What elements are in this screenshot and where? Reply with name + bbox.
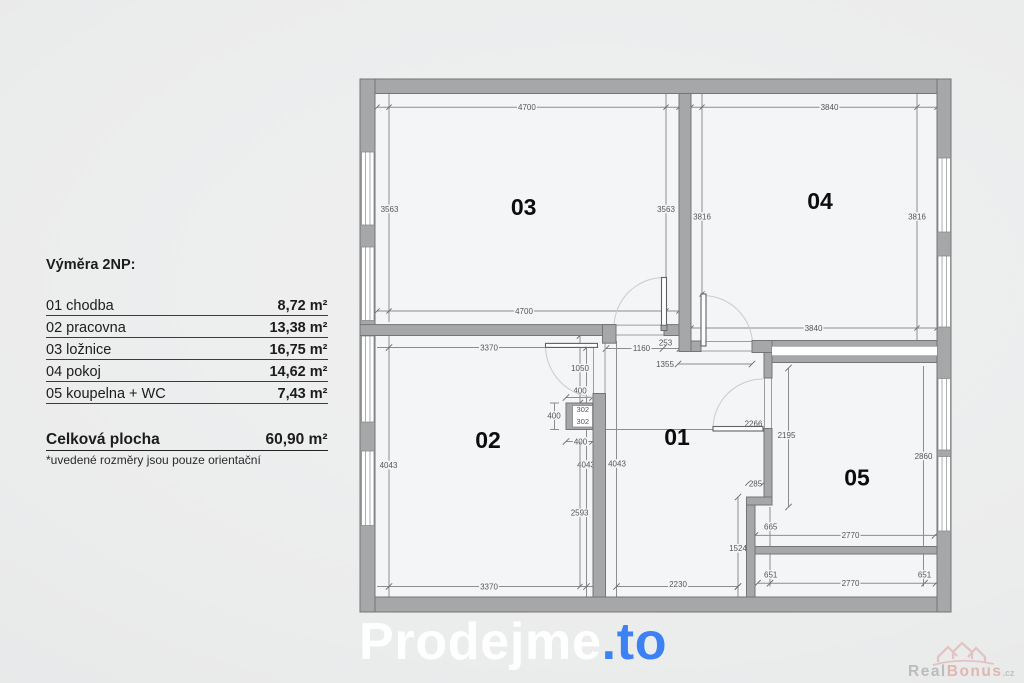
svg-text:651: 651 [918, 570, 932, 579]
svg-text:1355: 1355 [656, 360, 674, 369]
svg-text:2770: 2770 [842, 531, 860, 540]
svg-text:03: 03 [511, 194, 537, 220]
svg-text:4043: 4043 [380, 461, 398, 470]
svg-text:05: 05 [844, 465, 870, 491]
svg-text:2195: 2195 [778, 431, 796, 440]
svg-text:651: 651 [764, 570, 778, 579]
svg-text:285: 285 [749, 479, 763, 488]
svg-text:302: 302 [577, 417, 590, 426]
svg-text:1160: 1160 [633, 344, 651, 353]
svg-text:400: 400 [573, 386, 587, 395]
svg-text:3816: 3816 [693, 212, 711, 221]
svg-text:302: 302 [577, 405, 590, 414]
svg-text:400: 400 [547, 411, 561, 420]
svg-text:02: 02 [475, 427, 501, 453]
svg-text:1524: 1524 [729, 544, 747, 553]
svg-text:2593: 2593 [571, 509, 589, 518]
svg-text:4043: 4043 [608, 459, 626, 468]
svg-text:2230: 2230 [669, 580, 687, 589]
svg-text:4700: 4700 [518, 103, 536, 112]
svg-text:3563: 3563 [381, 205, 399, 214]
svg-text:4700: 4700 [515, 307, 533, 316]
svg-text:04: 04 [807, 188, 833, 214]
svg-text:3563: 3563 [657, 205, 675, 214]
svg-text:3816: 3816 [908, 212, 926, 221]
svg-text:3370: 3370 [480, 582, 498, 591]
svg-text:665: 665 [764, 522, 778, 531]
svg-text:1050: 1050 [571, 364, 589, 373]
svg-text:400: 400 [574, 437, 588, 446]
svg-text:2860: 2860 [915, 452, 933, 461]
svg-text:3370: 3370 [480, 343, 498, 352]
svg-text:3840: 3840 [805, 324, 823, 333]
svg-text:3840: 3840 [821, 103, 839, 112]
svg-text:01: 01 [664, 424, 690, 450]
svg-text:2770: 2770 [842, 579, 860, 588]
